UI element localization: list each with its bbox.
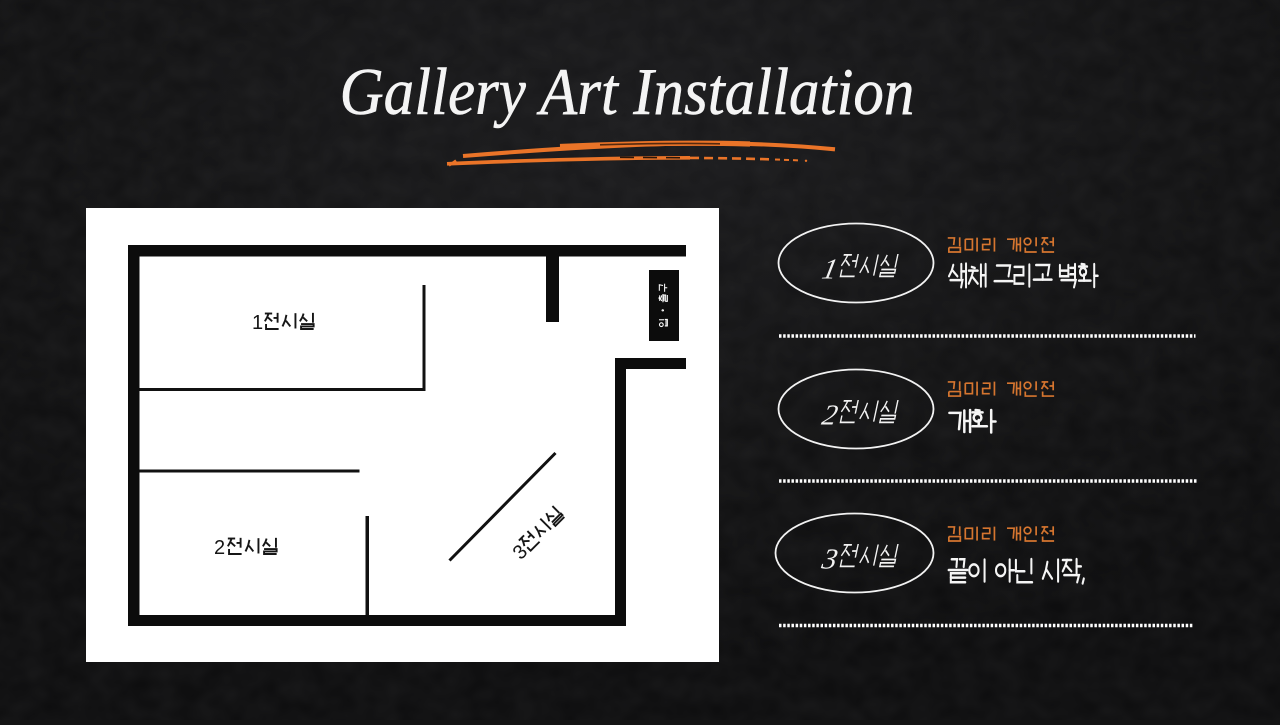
svg-text:Gallery Art Installation: Gallery Art Installation <box>340 54 915 128</box>
svg-text:1: 1 <box>252 312 263 334</box>
svg-text:2: 2 <box>214 537 225 559</box>
